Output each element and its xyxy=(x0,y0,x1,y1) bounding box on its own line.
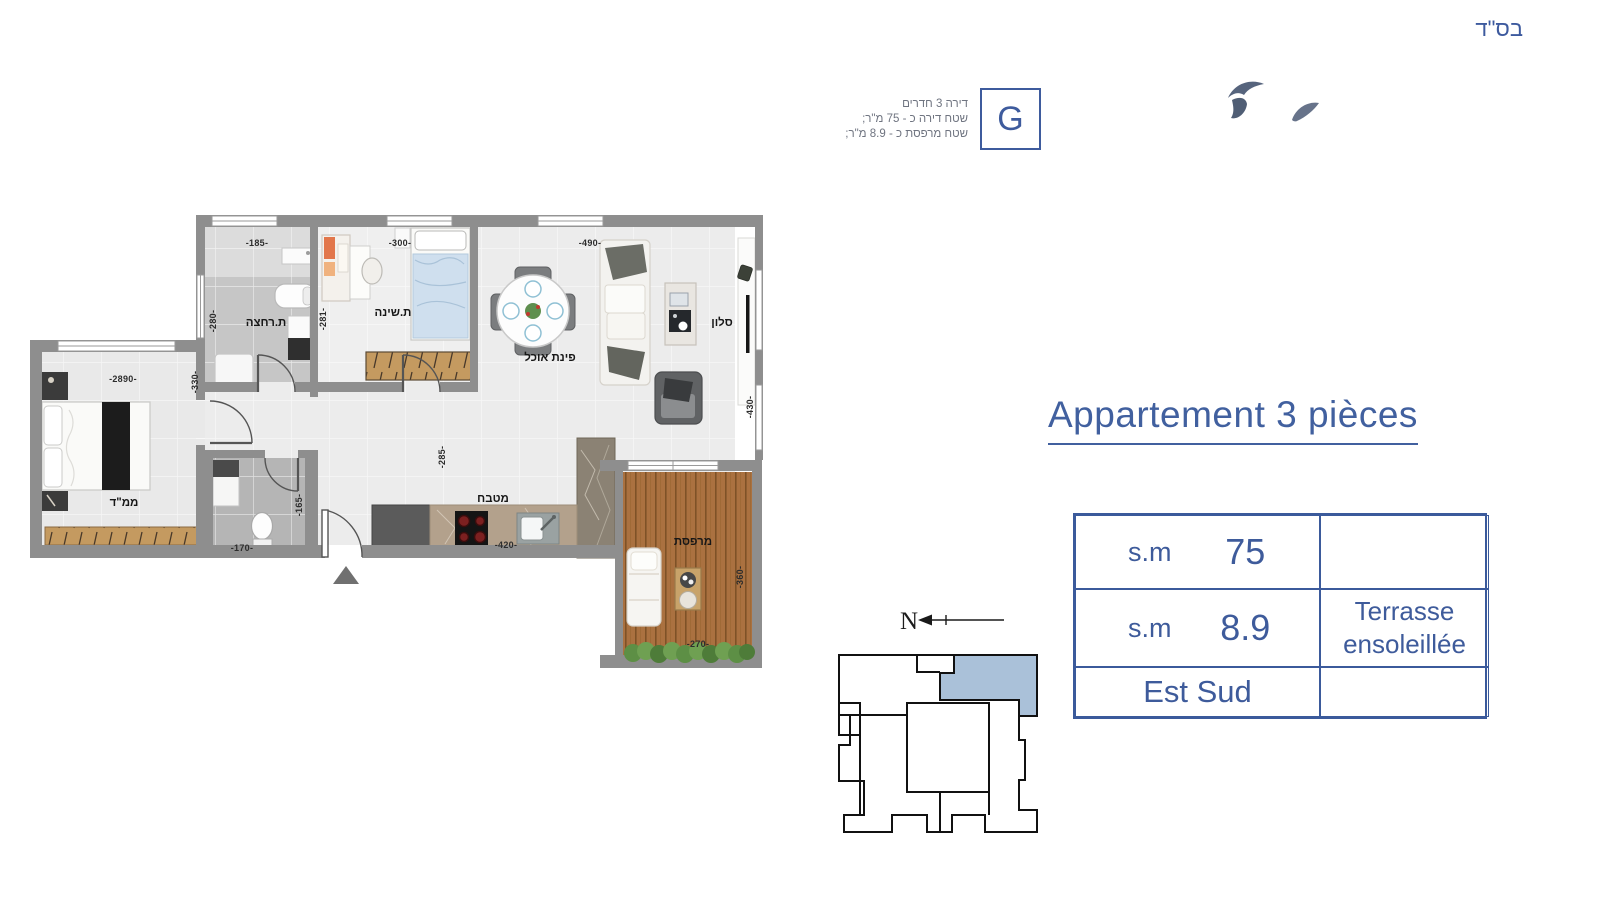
spec-terrace-area: 8.9 xyxy=(1172,607,1320,649)
stove xyxy=(455,511,488,546)
dim-label: -185- xyxy=(246,238,269,248)
kitchen-sink xyxy=(517,513,559,544)
sliding-door-icon xyxy=(628,461,718,470)
north-arrow-icon xyxy=(918,615,932,626)
spec-unit-label: s.m xyxy=(1128,537,1172,568)
spec-note-line: Terrasse xyxy=(1355,595,1455,628)
bird-icon xyxy=(1228,82,1264,98)
dim-label: -165- xyxy=(294,494,304,517)
dim-label: -270- xyxy=(687,639,710,649)
dim-label: -285- xyxy=(437,446,447,469)
unit-letter-box: G xyxy=(980,88,1041,150)
window-icon xyxy=(58,341,175,351)
dim-label: -281- xyxy=(318,308,328,331)
room-label-safe-room: ממ"ד xyxy=(110,497,139,509)
dim-label: -170- xyxy=(231,543,254,553)
room-label-dining: פינת אוכל xyxy=(524,351,575,364)
apartment-title: Appartement 3 pièces xyxy=(1048,394,1418,445)
dim-label: -2890- xyxy=(109,374,137,384)
window-icon xyxy=(212,216,277,226)
spec-note-line: ensoleillée xyxy=(1343,628,1466,661)
dim-label: -490- xyxy=(579,238,602,248)
bsd-text: בס"ד xyxy=(1475,16,1523,42)
bird-icon xyxy=(1292,103,1319,122)
dim-label: -360- xyxy=(735,566,745,589)
logo-birds xyxy=(1220,76,1330,136)
dim-label: -420- xyxy=(495,540,518,550)
unit-letter: G xyxy=(997,100,1023,139)
orientation-label: Est Sud xyxy=(1143,674,1252,710)
north-indicator: N xyxy=(900,608,1004,635)
room-label-terrace: מרפסת xyxy=(674,536,712,548)
window-icon xyxy=(538,216,603,226)
window-icon xyxy=(197,275,204,338)
room-label-bedroom: ת.שינה xyxy=(375,307,412,319)
unit-info-line: שטח דירה כ - 75 מ"ר; xyxy=(820,112,968,127)
dim-label: -330- xyxy=(190,371,200,394)
spec-row1-area: s.m 75 xyxy=(1075,515,1320,589)
tv-console xyxy=(737,238,755,405)
bird-icon xyxy=(1231,98,1247,118)
room-label-bathroom: ת.רחצה xyxy=(246,317,287,329)
spec-cell-empty xyxy=(1320,667,1489,717)
room-label-living: סלון xyxy=(711,316,733,329)
floor-plan: ת.רחצה ת.שינה סלון פינת אוכל מטבח מרפסת … xyxy=(25,210,765,680)
spec-row2-area: s.m 8.9 xyxy=(1075,589,1320,667)
armchair xyxy=(655,372,702,424)
key-plan: N xyxy=(822,585,1040,840)
room-label-kitchen: מטבח xyxy=(477,493,509,505)
spec-apartment-area: 75 xyxy=(1172,531,1320,573)
keyplan-building xyxy=(839,655,1037,832)
spec-terrace-note: Terrasse ensoleillée xyxy=(1320,589,1489,667)
window-icon xyxy=(387,216,452,226)
north-label: N xyxy=(900,608,918,635)
dim-label: -300- xyxy=(389,238,412,248)
spec-orientation: Est Sud xyxy=(1075,667,1320,717)
unit-info-line: שטח מרפסת כ - 8.9 מ"ר; xyxy=(820,127,968,142)
entrance-arrow-icon xyxy=(333,566,359,584)
terrace-deck xyxy=(623,472,752,655)
unit-info-line: דירה 3 חדרים xyxy=(820,97,968,112)
spec-unit-label: s.m xyxy=(1128,613,1172,644)
spec-cell-empty xyxy=(1320,515,1489,589)
spec-table: s.m 75 s.m 8.9 Terrasse ensoleillée Est … xyxy=(1073,513,1487,719)
dim-label: -280- xyxy=(208,310,218,333)
sofa xyxy=(600,240,650,385)
coffee-table xyxy=(665,283,696,345)
dim-label: -430- xyxy=(745,396,755,419)
unit-info: דירה 3 חדרים שטח דירה כ - 75 מ"ר; שטח מר… xyxy=(820,97,968,142)
